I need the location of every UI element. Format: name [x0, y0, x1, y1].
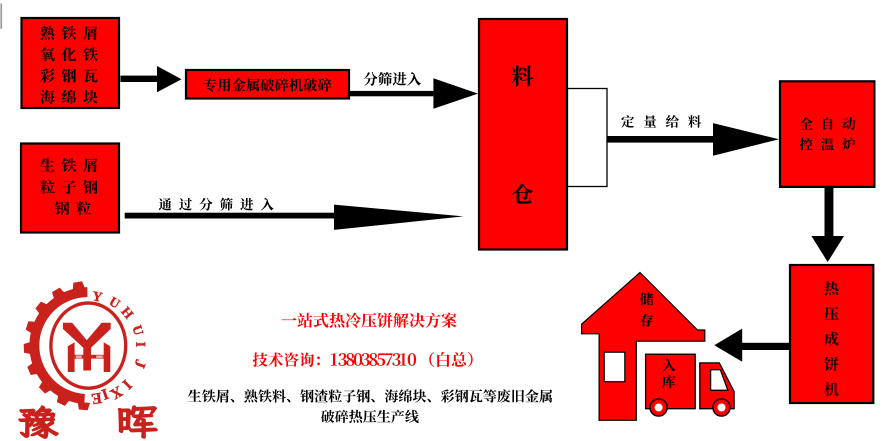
svg-text:U: U — [129, 323, 146, 337]
svg-text:E: E — [90, 389, 103, 407]
svg-text:Y: Y — [91, 288, 104, 305]
svg-text:H: H — [118, 304, 137, 322]
svg-text:I: I — [133, 342, 148, 348]
svg-text:J: J — [130, 357, 149, 370]
